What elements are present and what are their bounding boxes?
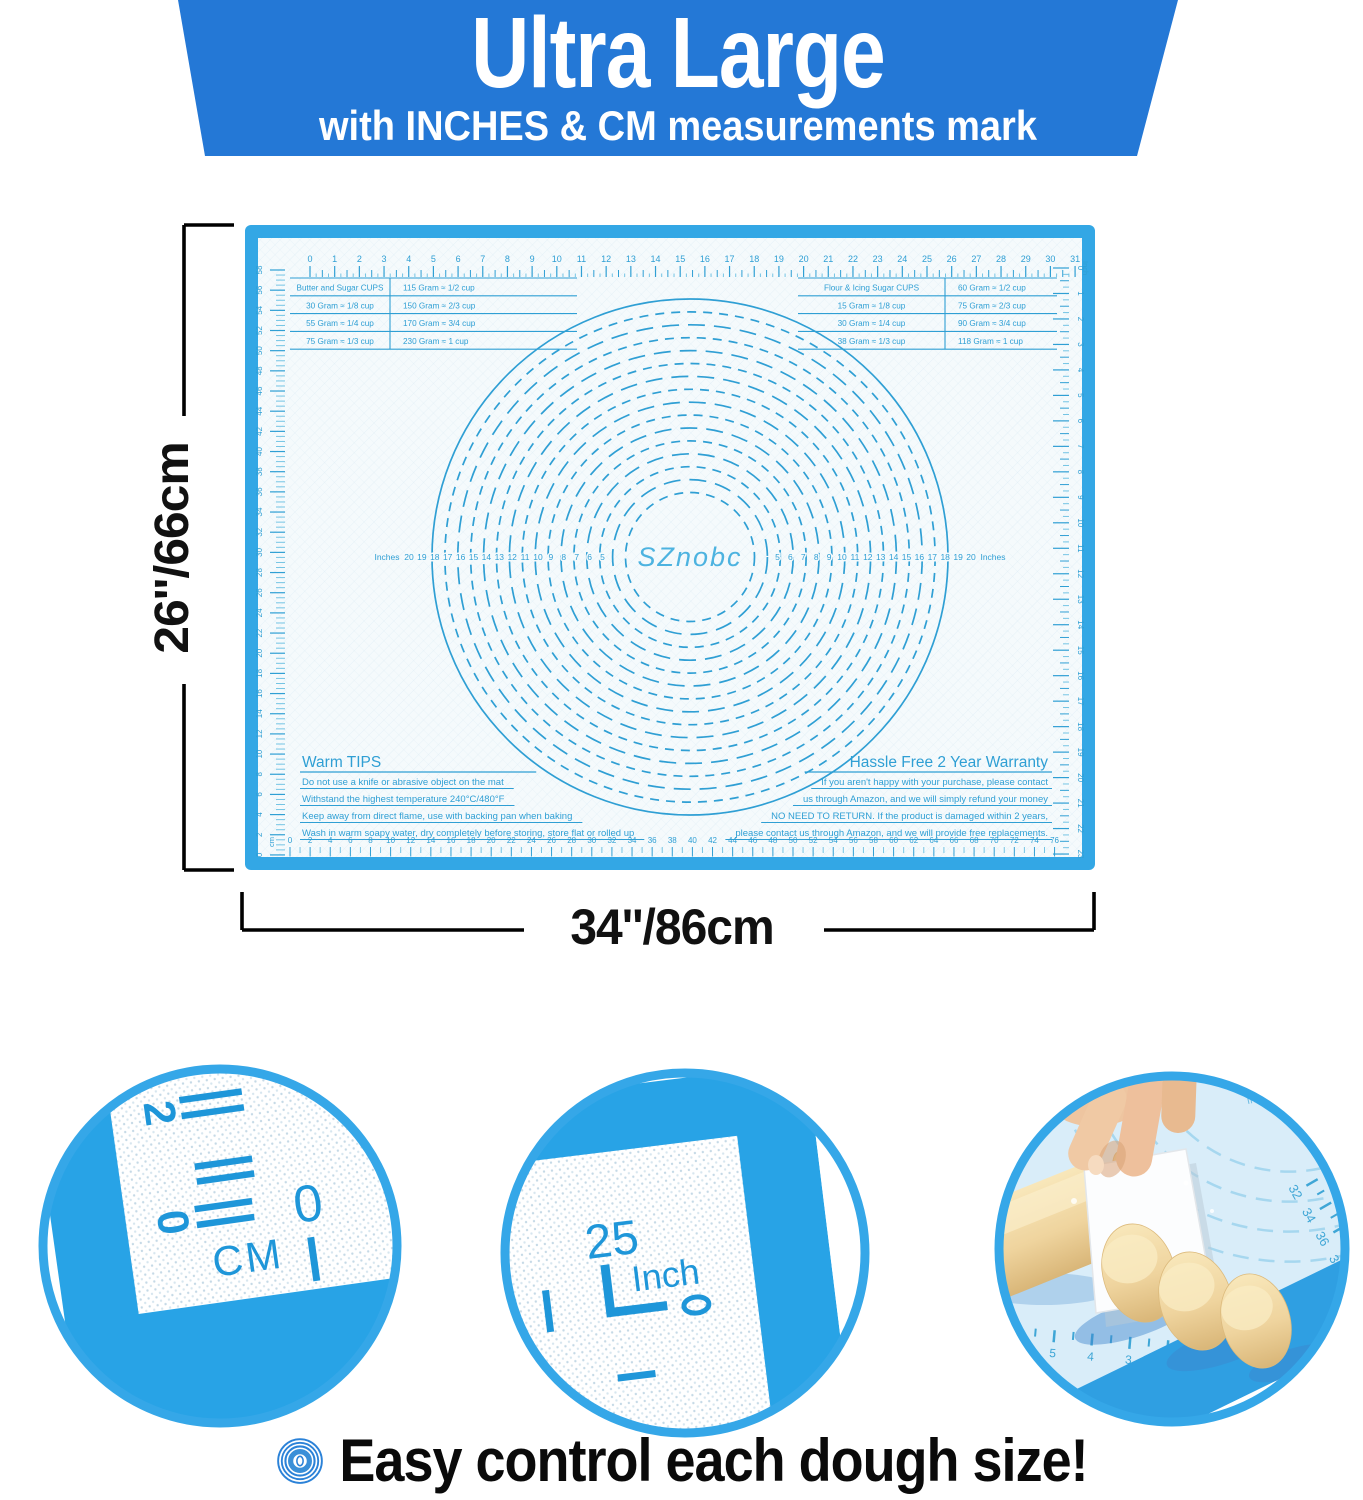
svg-text:21: 21 — [1076, 799, 1085, 808]
svg-text:30: 30 — [255, 547, 264, 556]
svg-text:3: 3 — [382, 254, 387, 264]
svg-text:6: 6 — [1076, 419, 1085, 424]
svg-text:Keep away from direct flame, u: Keep away from direct flame, use with ba… — [302, 811, 572, 822]
svg-text:58: 58 — [255, 265, 264, 274]
svg-text:If you aren't happy with your: If you aren't happy with your purchase, … — [821, 777, 1048, 788]
pastry-mat-graphic: 0123456789101112131415161718192021222324… — [245, 225, 1095, 870]
svg-text:2: 2 — [357, 254, 362, 264]
ruler-tick — [618, 1373, 656, 1378]
svg-text:75 Gram ≈ 1/3 cup: 75 Gram ≈ 1/3 cup — [306, 337, 374, 346]
svg-text:15: 15 — [675, 254, 685, 264]
svg-text:46: 46 — [255, 386, 264, 395]
svg-text:15: 15 — [469, 552, 479, 562]
svg-text:31: 31 — [1070, 254, 1080, 264]
svg-text:38: 38 — [668, 836, 677, 845]
svg-text:12: 12 — [255, 729, 264, 738]
svg-text:56: 56 — [255, 285, 264, 294]
svg-text:Flour & Icing Sugar CUPS: Flour & Icing Sugar CUPS — [824, 284, 920, 293]
svg-text:23: 23 — [1076, 850, 1085, 859]
svg-text:20: 20 — [799, 254, 809, 264]
svg-text:5: 5 — [431, 254, 436, 264]
svg-text:60 Gram ≈ 1/2 cup: 60 Gram ≈ 1/2 cup — [958, 284, 1026, 293]
svg-text:150 Gram ≈ 2/3 cup: 150 Gram ≈ 2/3 cup — [403, 301, 476, 310]
svg-text:11: 11 — [577, 254, 586, 264]
svg-text:22: 22 — [848, 254, 858, 264]
svg-text:6: 6 — [788, 552, 793, 562]
svg-text:12: 12 — [601, 254, 611, 264]
svg-text:13: 13 — [1076, 595, 1085, 604]
svg-text:8: 8 — [255, 771, 264, 776]
svg-text:14: 14 — [889, 552, 899, 562]
svg-text:17: 17 — [928, 552, 938, 562]
svg-text:please contact us through Amaz: please contact us through Amazon, and we… — [735, 828, 1048, 839]
svg-text:42: 42 — [708, 836, 717, 845]
svg-text:8: 8 — [814, 552, 819, 562]
svg-text:42: 42 — [1353, 1299, 1360, 1319]
svg-text:36: 36 — [648, 836, 657, 845]
svg-text:19: 19 — [417, 552, 427, 562]
svg-text:11: 11 — [1076, 544, 1085, 553]
svg-text:3: 3 — [1076, 342, 1085, 347]
closeup-cm-unit: CM — [209, 1229, 286, 1285]
svg-text:118 Gram ≈ 1 cup: 118 Gram ≈ 1 cup — [958, 337, 1023, 346]
svg-text:7: 7 — [574, 552, 579, 562]
svg-text:0: 0 — [288, 836, 293, 845]
svg-text:27: 27 — [971, 254, 981, 264]
svg-text:13: 13 — [626, 254, 636, 264]
svg-text:Withstand the highest temperat: Withstand the highest temperature 240°C/… — [302, 794, 505, 805]
svg-text:16: 16 — [456, 552, 466, 562]
width-dimension-label: 34''/86cm — [522, 896, 822, 959]
caption: Easy control each dough size! — [0, 1428, 1363, 1494]
svg-text:0: 0 — [307, 254, 312, 264]
svg-text:0: 0 — [1076, 266, 1085, 271]
svg-text:Warm TIPS: Warm TIPS — [302, 754, 381, 771]
svg-text:10: 10 — [552, 254, 562, 264]
svg-text:22: 22 — [1076, 824, 1085, 833]
svg-text:17: 17 — [1076, 697, 1085, 706]
svg-text:12: 12 — [1076, 569, 1085, 578]
svg-text:22: 22 — [255, 628, 264, 637]
svg-text:16: 16 — [915, 552, 925, 562]
svg-text:13: 13 — [876, 552, 886, 562]
svg-text:28: 28 — [996, 254, 1006, 264]
svg-text:9: 9 — [1076, 495, 1085, 500]
height-dimension-label: 26''/66cm — [142, 392, 202, 704]
svg-text:7: 7 — [1076, 444, 1085, 449]
svg-text:10: 10 — [255, 749, 264, 758]
svg-text:10: 10 — [1076, 518, 1085, 527]
svg-text:20: 20 — [966, 552, 976, 562]
svg-text:8: 8 — [505, 254, 510, 264]
svg-text:8: 8 — [561, 552, 566, 562]
svg-text:14: 14 — [1076, 620, 1085, 629]
banner: Ultra Large with INCHES & CM measurement… — [178, 0, 1178, 156]
caption-text: Easy control each dough size! — [339, 1426, 1087, 1495]
svg-text:18: 18 — [430, 552, 440, 562]
svg-text:NO NEED TO RETURN. If the prod: NO NEED TO RETURN. If the product is dam… — [771, 811, 1048, 822]
svg-text:24: 24 — [897, 254, 907, 264]
svg-text:14: 14 — [651, 254, 661, 264]
svg-text:Do not use a knife or abrasive: Do not use a knife or abrasive object on… — [302, 777, 504, 788]
svg-text:14: 14 — [482, 552, 492, 562]
brand-text: SZnobc — [637, 542, 742, 572]
svg-text:30 Gram ≈ 1/4 cup: 30 Gram ≈ 1/4 cup — [838, 319, 906, 328]
svg-text:6: 6 — [255, 792, 264, 797]
svg-text:54: 54 — [255, 305, 264, 314]
svg-text:23: 23 — [873, 254, 883, 264]
svg-text:1: 1 — [1076, 291, 1085, 296]
svg-text:26: 26 — [255, 588, 264, 597]
detail-circle-inch-closeup: 25 Inch — [489, 1057, 881, 1449]
product-image: Ultra Large with INCHES & CM measurement… — [0, 0, 1363, 1500]
svg-text:20: 20 — [1076, 773, 1085, 782]
svg-text:38 Gram ≈ 1/3 cup: 38 Gram ≈ 1/3 cup — [838, 337, 906, 346]
svg-text:115 Gram ≈ 1/2 cup: 115 Gram ≈ 1/2 cup — [403, 284, 475, 293]
svg-text:5: 5 — [1076, 393, 1085, 398]
svg-text:cm: cm — [267, 837, 276, 847]
svg-text:76: 76 — [1050, 836, 1059, 845]
svg-text:18: 18 — [749, 254, 759, 264]
svg-text:7: 7 — [801, 552, 806, 562]
svg-text:7: 7 — [480, 254, 485, 264]
svg-text:42: 42 — [255, 426, 264, 435]
banner-subtitle: with INCHES & CM measurements mark — [319, 106, 1037, 148]
svg-text:11: 11 — [521, 552, 530, 562]
svg-text:32: 32 — [255, 527, 264, 536]
svg-text:9: 9 — [827, 552, 832, 562]
svg-text:28: 28 — [255, 568, 264, 577]
svg-text:19: 19 — [1076, 748, 1085, 757]
svg-text:10: 10 — [837, 552, 847, 562]
svg-text:6: 6 — [587, 552, 592, 562]
svg-text:55 Gram ≈ 1/4 cup: 55 Gram ≈ 1/4 cup — [306, 319, 374, 328]
svg-text:34: 34 — [255, 507, 264, 516]
svg-text:17: 17 — [725, 254, 735, 264]
svg-text:14: 14 — [255, 709, 264, 718]
svg-text:36: 36 — [255, 487, 264, 496]
svg-text:29: 29 — [1021, 254, 1031, 264]
svg-text:16: 16 — [255, 689, 264, 698]
svg-text:25: 25 — [922, 254, 932, 264]
svg-text:90 Gram ≈ 3/4 cup: 90 Gram ≈ 3/4 cup — [958, 319, 1026, 328]
svg-text:Butter and Sugar CUPS: Butter and Sugar CUPS — [297, 284, 384, 293]
svg-text:17: 17 — [443, 552, 453, 562]
svg-text:12: 12 — [507, 552, 517, 562]
svg-text:20: 20 — [404, 552, 414, 562]
svg-text:16: 16 — [700, 254, 710, 264]
svg-text:4: 4 — [406, 254, 411, 264]
closeup-inch-unit: Inch — [629, 1251, 702, 1300]
svg-text:40: 40 — [255, 447, 264, 456]
detail-circle-cm-closeup: 2 0 CM 0 — [28, 1054, 412, 1438]
svg-text:15: 15 — [1076, 646, 1085, 655]
svg-text:30: 30 — [1045, 254, 1055, 264]
detail-circle-dough-photo: Inches 32343638404244 65432 — [984, 1061, 1360, 1437]
svg-text:170 Gram ≈ 3/4 cup: 170 Gram ≈ 3/4 cup — [403, 319, 476, 328]
svg-text:26: 26 — [947, 254, 957, 264]
svg-text:21: 21 — [823, 254, 833, 264]
svg-text:Inches: Inches — [374, 552, 399, 562]
svg-text:48: 48 — [255, 366, 264, 375]
svg-text:230 Gram ≈ 1 cup: 230 Gram ≈ 1 cup — [403, 337, 469, 346]
svg-text:9: 9 — [549, 552, 554, 562]
svg-text:20: 20 — [255, 648, 264, 657]
svg-text:18: 18 — [255, 668, 264, 677]
svg-text:Inches: Inches — [980, 552, 1005, 562]
svg-text:5: 5 — [775, 552, 780, 562]
svg-text:Hassle Free 2 Year Warranty: Hassle Free 2 Year Warranty — [850, 754, 1049, 771]
svg-text:38: 38 — [255, 467, 264, 476]
svg-text:12: 12 — [863, 552, 873, 562]
svg-text:16: 16 — [1076, 671, 1085, 680]
svg-text:2: 2 — [255, 832, 264, 837]
svg-text:4: 4 — [1076, 368, 1085, 373]
svg-text:0: 0 — [255, 852, 264, 857]
banner-title: Ultra Large — [471, 4, 884, 104]
svg-text:10: 10 — [533, 552, 543, 562]
svg-text:13: 13 — [495, 552, 505, 562]
svg-text:30 Gram ≈ 1/8 cup: 30 Gram ≈ 1/8 cup — [306, 301, 374, 310]
svg-text:18: 18 — [1076, 722, 1085, 731]
svg-text:us through Amazon, and we wil: us through Amazon, and we will simply re… — [803, 794, 1048, 805]
svg-text:1: 1 — [332, 254, 337, 264]
svg-text:2: 2 — [1076, 317, 1085, 322]
svg-text:6: 6 — [456, 254, 461, 264]
svg-text:9: 9 — [530, 254, 535, 264]
svg-text:8: 8 — [1076, 470, 1085, 475]
target-icon — [275, 1436, 325, 1486]
svg-text:24: 24 — [255, 608, 264, 617]
svg-text:18: 18 — [940, 552, 950, 562]
svg-text:75 Gram ≈ 2/3 cup: 75 Gram ≈ 2/3 cup — [958, 301, 1026, 310]
svg-text:19: 19 — [953, 552, 963, 562]
svg-text:40: 40 — [688, 836, 697, 845]
svg-text:11: 11 — [850, 552, 859, 562]
svg-text:15: 15 — [902, 552, 912, 562]
svg-text:6: 6 — [1011, 1343, 1019, 1358]
svg-text:19: 19 — [774, 254, 784, 264]
svg-text:50: 50 — [255, 346, 264, 355]
svg-text:15 Gram ≈ 1/8 cup: 15 Gram ≈ 1/8 cup — [838, 301, 906, 310]
svg-text:44: 44 — [255, 406, 264, 415]
svg-text:Wash in warm soapy water, dry: Wash in warm soapy water, dry completely… — [302, 828, 634, 839]
svg-text:4: 4 — [255, 812, 264, 817]
svg-text:52: 52 — [255, 326, 264, 335]
svg-text:5: 5 — [600, 552, 605, 562]
